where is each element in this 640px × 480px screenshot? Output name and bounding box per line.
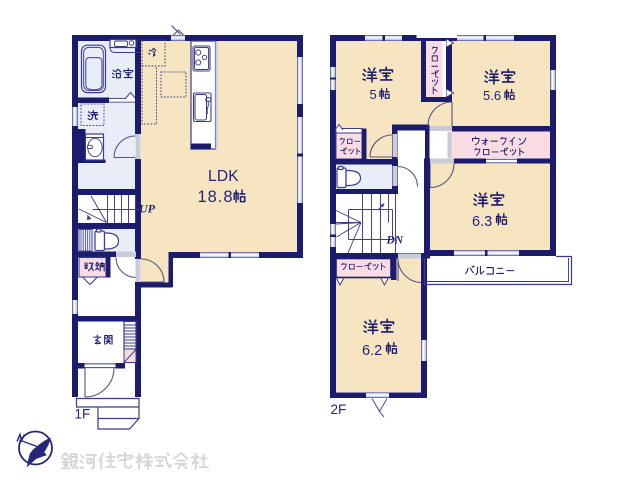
svg-text:6.2: 6.2: [362, 343, 382, 359]
svg-text:2F: 2F: [331, 402, 347, 417]
svg-text:5: 5: [370, 87, 377, 102]
svg-text:5.6: 5.6: [483, 88, 501, 103]
svg-text:18.8: 18.8: [198, 188, 234, 206]
svg-text:1F: 1F: [75, 407, 91, 422]
svg-text:LDK: LDK: [208, 168, 239, 185]
svg-text:DN: DN: [386, 235, 404, 247]
svg-text:UP: UP: [139, 202, 156, 216]
svg-text:6.3: 6.3: [472, 214, 492, 230]
